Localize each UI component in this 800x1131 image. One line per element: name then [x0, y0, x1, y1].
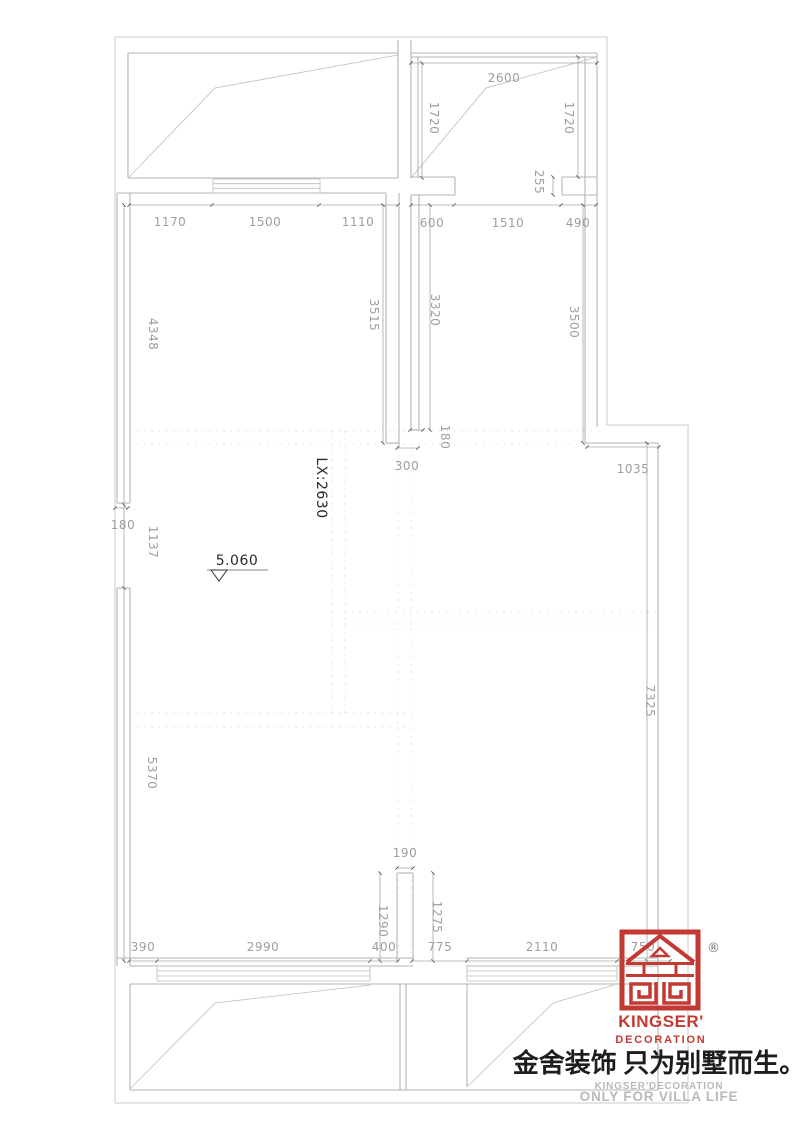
window-bottom-left: [157, 966, 370, 981]
dim-2990: 2990: [247, 940, 280, 954]
dim-1170: 1170: [154, 215, 187, 229]
dim-7325: 7325: [643, 685, 657, 718]
windows: [157, 179, 617, 981]
dim-1500: 1500: [249, 215, 282, 229]
beam-label: LX:2630: [313, 457, 329, 518]
dim-300: 300: [395, 459, 419, 473]
level-value: 5.060: [216, 553, 259, 569]
brand-subtitle: DECORATION: [615, 1034, 706, 1046]
dim-3320: 3320: [428, 294, 442, 327]
dim-600: 600: [420, 216, 444, 230]
floor-plan-drawing: 1170 1500 1110 600 1510 490 2600 1720 17…: [0, 0, 800, 1131]
registered-mark: ®: [707, 941, 720, 956]
dim-190: 190: [393, 846, 417, 860]
dim-2600: 2600: [488, 71, 521, 85]
level-triangle-icon: [211, 570, 227, 581]
beam-dotted-lines: [130, 431, 658, 958]
dim-1137: 1137: [146, 526, 160, 559]
brand-tagline-cn: 金舍装饰 只为别墅而生。: [512, 1048, 800, 1078]
dim-1110: 1110: [342, 215, 375, 229]
dim-490: 490: [566, 216, 590, 230]
dim-390: 390: [131, 940, 155, 954]
window-bottom-right: [467, 966, 617, 981]
dim-180-left: 180: [111, 518, 135, 532]
dim-775: 775: [428, 940, 452, 954]
dim-5370: 5370: [145, 757, 159, 790]
brand-name: KINGSER': [618, 1012, 704, 1031]
dim-180-mid: 180: [438, 425, 452, 449]
floor-plan-canvas: 1170 1500 1110 600 1510 490 2600 1720 17…: [0, 0, 800, 1131]
brand-tagline-en: ONLY FOR VILLA LIFE: [580, 1089, 739, 1104]
dim-255: 255: [532, 170, 546, 194]
dim-3515: 3515: [367, 299, 381, 332]
dimension-texts: 1170 1500 1110 600 1510 490 2600 1720 17…: [111, 71, 657, 954]
level-marker: 5.060: [207, 553, 268, 581]
dim-1510: 1510: [492, 216, 525, 230]
dim-1290: 1290: [376, 905, 390, 938]
dim-1720-right: 1720: [562, 102, 576, 135]
dim-1720-left: 1720: [427, 102, 441, 135]
dim-1275: 1275: [430, 901, 444, 934]
outer-border: [115, 37, 688, 1103]
dim-4348: 4348: [146, 318, 160, 351]
dim-3500: 3500: [567, 306, 581, 339]
dim-400: 400: [372, 940, 396, 954]
dim-1035: 1035: [617, 462, 650, 476]
window-top-left: [213, 179, 320, 193]
dim-2110: 2110: [526, 940, 559, 954]
